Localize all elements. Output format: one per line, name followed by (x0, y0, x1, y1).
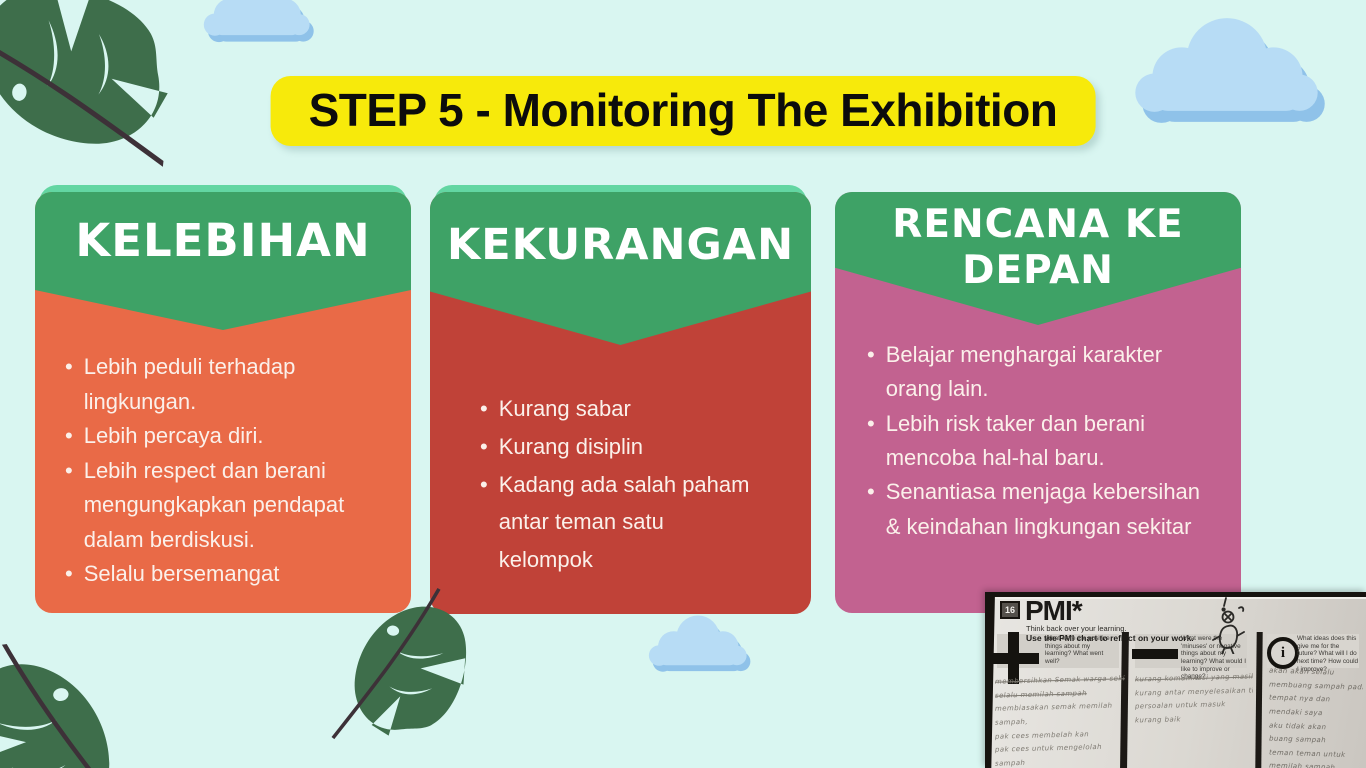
card-header-label: KELEBIHAN (75, 192, 370, 267)
handwritten-notes: kurang komunikasi yang masihkurang antar… (1135, 672, 1253, 727)
cloud-icon (644, 606, 752, 678)
doodle-figure-icon (1209, 596, 1251, 654)
card-content: Belajar menghargai karakter orang lain.L… (835, 338, 1241, 544)
bullet-dot (65, 454, 73, 558)
card-kekurangan: KEKURANGAN Kurang sabarKurang disiplinKa… (430, 192, 811, 614)
minus-icon (1132, 649, 1178, 659)
handwriting-line: kurang baik (1135, 711, 1253, 728)
plus-prompt: What were the positive things about my l… (1045, 635, 1117, 666)
bullet-item: Belajar menghargai karakter orang lain. (867, 338, 1217, 407)
slide-title-badge: STEP 5 - Monitoring The Exhibition (271, 76, 1096, 146)
bullet-item: Selalu bersemangat (65, 557, 377, 592)
bullet-list: Belajar menghargai karakter orang lain.L… (867, 338, 1217, 544)
bullet-dot (867, 407, 875, 476)
monstera-leaf-icon (0, 0, 182, 175)
handwriting-line: memilah sampah (1269, 760, 1363, 768)
handwriting-line: sampah (995, 754, 1125, 768)
bullet-text: Belajar menghargai karakter orang lain. (886, 338, 1217, 407)
bullet-text: Kurang disiplin (499, 428, 643, 466)
bullet-text: Kadang ada salah paham antar teman satu … (499, 466, 757, 579)
pmi-worksheet-photo: 16 PMI* Think back over your learning. U… (985, 592, 1366, 768)
bullet-item: Senantiasa menjaga kebersihan & keindaha… (867, 475, 1217, 544)
handwritten-notes: akan akan selalumembuang sampah padatemp… (1269, 666, 1363, 768)
cloud-icon (1126, 2, 1328, 133)
bullet-dot (480, 466, 488, 579)
card-kelebihan: KELEBIHAN Lebih peduli terhadap lingkung… (35, 192, 411, 613)
bullet-dot (867, 338, 875, 407)
bullet-dot (867, 475, 875, 544)
bullet-list: Lebih peduli terhadap lingkungan.Lebih p… (65, 350, 377, 592)
worksheet-number: 16 (1000, 601, 1020, 619)
worksheet-title: PMI* (1025, 595, 1082, 627)
bullet-list: Kurang sabarKurang disiplinKadang ada sa… (480, 390, 757, 579)
bullet-text: Lebih respect dan berani mengungkapkan p… (84, 454, 377, 558)
bullet-item: Kadang ada salah paham antar teman satu … (480, 466, 757, 579)
bullet-item: Kurang disiplin (480, 428, 757, 466)
bullet-dot (65, 350, 73, 419)
bullet-text: Kurang sabar (499, 390, 631, 428)
handwritten-notes: membersihkan Semak warga sekitarselalu m… (995, 674, 1125, 768)
bullet-text: Selalu bersemangat (84, 557, 280, 592)
bullet-item: Lebih percaya diri. (65, 419, 377, 454)
card-header-label: KEKURANGAN (447, 192, 794, 270)
bullet-text: Lebih percaya diri. (84, 419, 264, 454)
bullet-dot (480, 390, 488, 428)
card-content: Lebih peduli terhadap lingkungan.Lebih p… (35, 350, 411, 592)
column-divider (1255, 632, 1262, 768)
bullet-item: Lebih peduli terhadap lingkungan. (65, 350, 377, 419)
card-rencana-ke-depan: RENCANA KE DEPAN Belajar menghargai kara… (835, 192, 1241, 613)
cloud-icon (198, 0, 316, 48)
monstera-leaf-icon (0, 629, 139, 768)
bullet-dot (65, 557, 73, 592)
presentation-slide: STEP 5 - Monitoring The Exhibition KELEB… (0, 0, 1366, 768)
worksheet-subtitle: Think back over your learning. (1026, 624, 1126, 633)
bullet-text: Senantiasa menjaga kebersihan & keindaha… (886, 475, 1217, 544)
bullet-text: Lebih peduli terhadap lingkungan. (84, 350, 377, 419)
bullet-dot (65, 419, 73, 454)
card-header-label: RENCANA KE DEPAN (835, 192, 1241, 294)
bullet-item: Lebih risk taker dan berani mencoba hal-… (867, 407, 1217, 476)
bullet-text: Lebih risk taker dan berani mencoba hal-… (886, 407, 1217, 476)
slide-title: STEP 5 - Monitoring The Exhibition (309, 86, 1058, 134)
bullet-item: Lebih respect dan berani mengungkapkan p… (65, 454, 377, 558)
card-content: Kurang sabarKurang disiplinKadang ada sa… (430, 390, 811, 579)
bullet-dot (480, 428, 488, 466)
bullet-item: Kurang sabar (480, 390, 757, 428)
